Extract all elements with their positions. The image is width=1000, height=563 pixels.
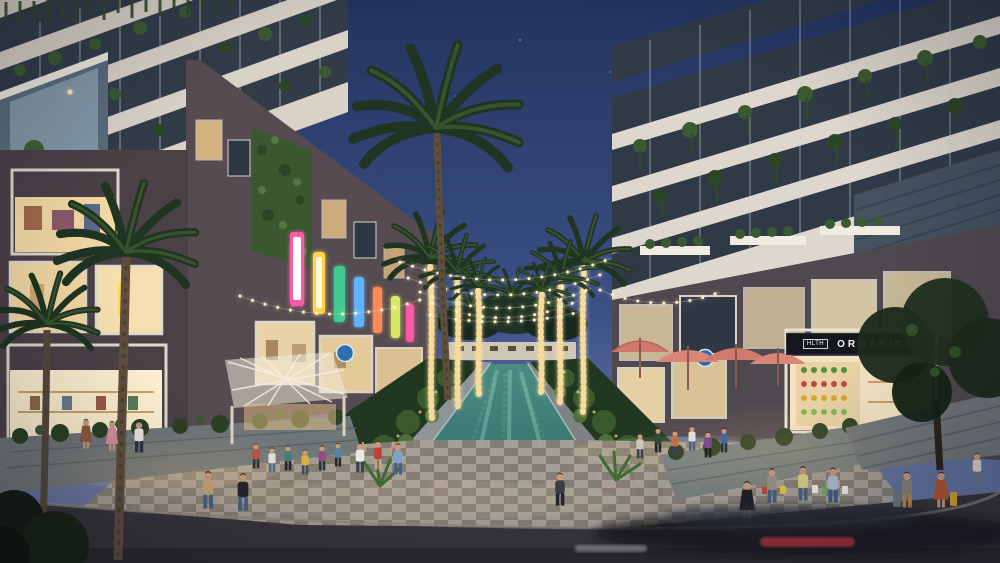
headlight-streak (575, 545, 647, 552)
person (798, 466, 808, 500)
shopping-bag (812, 485, 818, 493)
fan-palm-right (600, 452, 640, 480)
person (688, 426, 695, 450)
taillight-streak (760, 537, 855, 547)
palm-tree-left-large (57, 183, 195, 560)
tree-right-foreground (857, 278, 1000, 470)
person (80, 419, 92, 449)
person (252, 443, 259, 468)
person (671, 430, 678, 455)
person (828, 468, 838, 503)
person (636, 433, 643, 458)
person (135, 421, 144, 452)
car-motion-blur (575, 504, 1000, 555)
shopping-bag (762, 487, 767, 494)
person (268, 447, 275, 472)
person (356, 443, 365, 473)
person (654, 428, 661, 452)
palm-tree-center (353, 45, 519, 400)
person (973, 453, 982, 483)
person (203, 471, 214, 508)
person (767, 468, 777, 502)
scene-front (0, 0, 1000, 563)
people (80, 419, 981, 519)
person (934, 472, 949, 508)
person (335, 443, 342, 466)
shopping-bag (822, 487, 827, 494)
person (902, 472, 912, 508)
person (284, 445, 291, 470)
person (720, 428, 727, 452)
suitcase (893, 492, 901, 507)
shopping-bag (842, 486, 848, 494)
architectural-rendering: Dusk architectural rendering of a retail… (0, 0, 1000, 563)
person (704, 432, 711, 458)
person (555, 473, 564, 506)
suitcase (950, 492, 957, 506)
person (301, 449, 308, 474)
shopping-bag (780, 486, 786, 494)
person (106, 421, 118, 451)
person (318, 445, 325, 470)
person (238, 473, 249, 510)
